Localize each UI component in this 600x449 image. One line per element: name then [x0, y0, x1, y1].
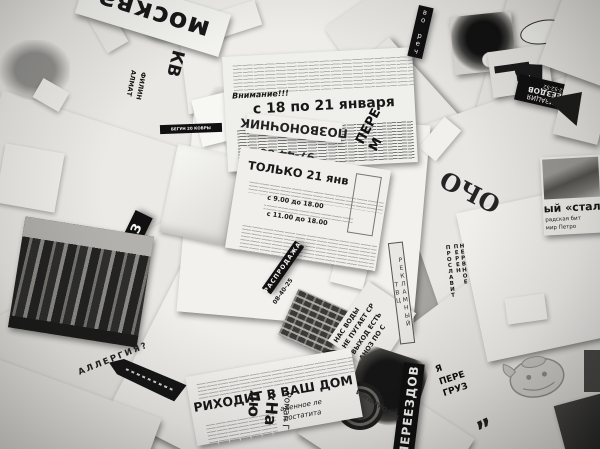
stal-article: ый «стал радская бит мир Петро	[540, 154, 600, 235]
stal-headline: ый «стал	[543, 200, 600, 216]
paper-scrap	[0, 143, 65, 213]
roman-vertical-fragment: Роман Г «На лю	[247, 390, 291, 449]
vnimanie-label: Внимание!!!	[232, 89, 289, 101]
stal-line: радская бит	[545, 216, 581, 224]
na-lyu-text: «На лю	[242, 389, 281, 449]
begun-strip-text: БЕГУН 20 КОВРЫ	[171, 126, 211, 132]
newspaper-collage: москва КВ ФИЛИН АЛМАТ БЕГУН 20 КОВРЫ Вни…	[0, 0, 600, 449]
crowd-photo	[8, 217, 154, 348]
ad-frame	[347, 173, 382, 236]
paper-scrap	[504, 293, 547, 324]
dark-photo-scrap	[584, 350, 600, 392]
article-photo	[542, 157, 600, 200]
stal-line: мир Петро	[546, 224, 577, 232]
